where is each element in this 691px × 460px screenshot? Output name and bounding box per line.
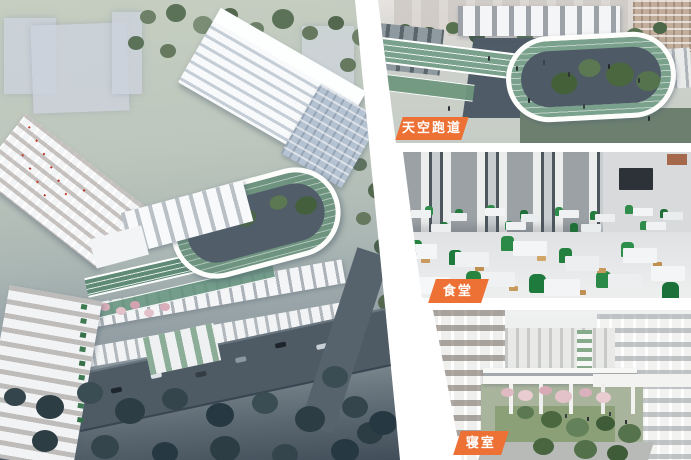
loop-courtyard <box>520 45 663 108</box>
wall-screen <box>619 168 653 190</box>
dormitory-building <box>0 285 102 460</box>
bridge-building <box>458 6 620 36</box>
dorm-building-back <box>505 328 615 370</box>
campus-collage: 天空跑道 食堂 寝室 <box>0 0 691 460</box>
table-cluster <box>403 244 437 259</box>
tree-cluster <box>578 59 601 78</box>
campus-aerial-photo <box>0 0 410 460</box>
elevated-walkway <box>593 374 691 387</box>
elevated-loop-track <box>504 30 678 125</box>
massing-block <box>112 12 142 94</box>
tree-cluster <box>140 10 156 24</box>
lawn <box>495 406 615 446</box>
green-balcony-accents <box>81 304 88 310</box>
canteen-badge: 食堂 <box>428 279 489 303</box>
people-cluster <box>565 414 567 418</box>
tree-cluster <box>517 406 534 419</box>
wall-vent <box>667 154 687 165</box>
dormitory-badge-label: 寝室 <box>466 437 496 450</box>
sky-track-badge-label: 天空跑道 <box>402 122 462 135</box>
red-window-accents <box>28 126 31 129</box>
street-tree-cluster <box>4 388 26 406</box>
canteen-badge-label: 食堂 <box>443 285 473 298</box>
sky-track-badge: 天空跑道 <box>395 117 468 140</box>
table-cluster <box>411 210 431 218</box>
canteen-photo <box>395 152 691 298</box>
track-straight <box>370 71 475 102</box>
blossom-tree-cluster <box>501 388 514 397</box>
people-cluster <box>488 56 490 61</box>
dormitory-badge: 寝室 <box>453 431 509 455</box>
